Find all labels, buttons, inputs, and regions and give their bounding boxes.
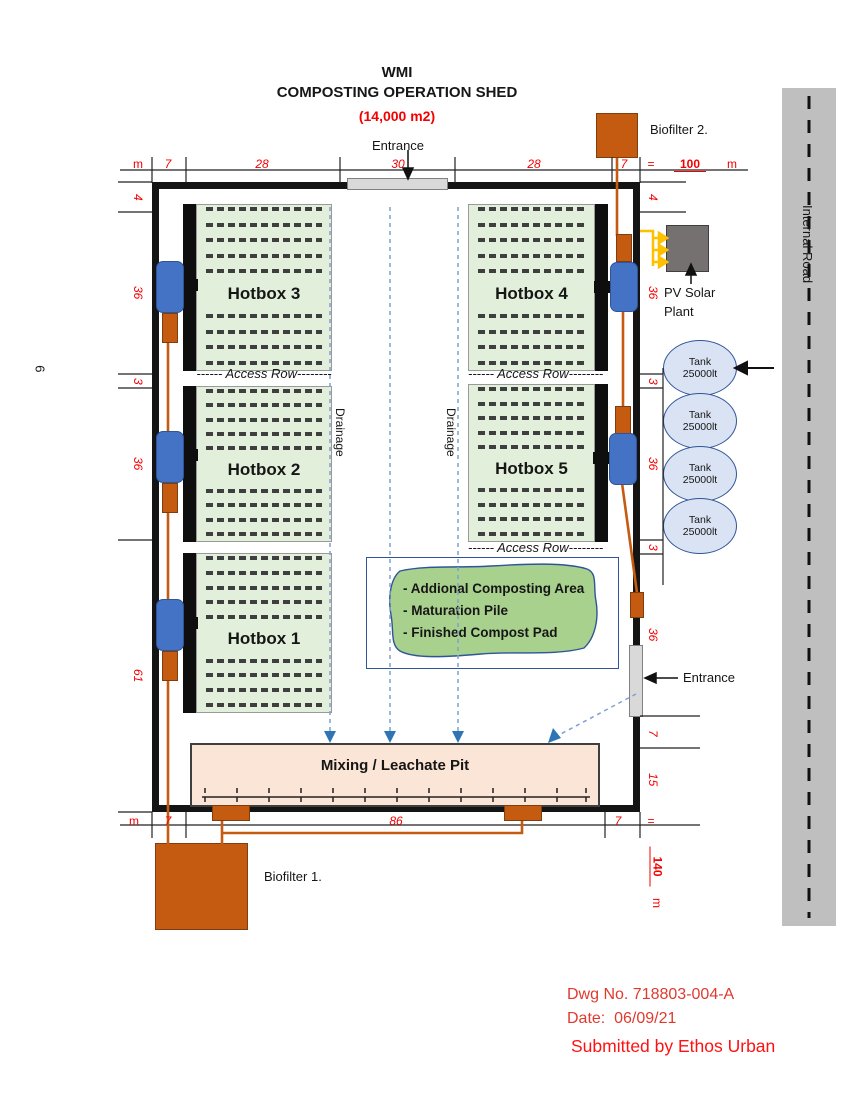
dim-top-total: 100 xyxy=(674,157,706,172)
entrance-top-label: Entrance xyxy=(372,138,424,153)
dim-bottom-7-left: 7 xyxy=(160,814,176,828)
fan-duct xyxy=(616,234,632,262)
fan-duct xyxy=(615,406,631,434)
dim-bottom-total: 140 xyxy=(650,847,665,887)
dim-right-36a: 36 xyxy=(646,278,660,308)
drainage-lines xyxy=(330,207,636,736)
pit-tick-strip xyxy=(202,788,590,806)
dim-right-3a: 3 xyxy=(646,370,660,392)
drainage-label: Drainage xyxy=(443,408,458,480)
drawing-title-line1: WMI xyxy=(147,64,647,81)
dim-right-4: 4 xyxy=(646,186,660,208)
air-pipes xyxy=(168,158,637,845)
drainage-arrowheads xyxy=(324,728,561,743)
dim-top-m-right: m xyxy=(724,157,740,171)
dim-bottom-equals: = xyxy=(644,814,658,828)
pit-connector xyxy=(212,805,250,821)
tank-inlet-arrow xyxy=(735,362,774,374)
submitted-by: Submitted by Ethos Urban xyxy=(571,1036,775,1057)
dim-left-3: 3 xyxy=(131,370,145,392)
internal-road-label: Internal Road xyxy=(800,205,815,325)
linework-layer xyxy=(0,0,844,1104)
dim-bottom-m: m xyxy=(126,814,142,828)
biofilter-2-label: Biofilter 2. xyxy=(650,122,708,137)
wall-pipe-connector xyxy=(630,592,644,618)
dim-bottom-m-rot: m xyxy=(650,895,664,911)
aeration-fan-hotbox5 xyxy=(609,433,637,485)
page-number: 9 xyxy=(33,353,48,373)
dim-top-28-left: 28 xyxy=(248,157,276,171)
drawing-title-area: (14,000 m2) xyxy=(147,108,647,124)
dwg-date: Date: 06/09/21 xyxy=(567,1010,676,1028)
dim-top-28-right: 28 xyxy=(520,157,548,171)
fan-duct xyxy=(162,483,178,513)
pv-arrow xyxy=(686,264,696,284)
solar-feed-arrows xyxy=(640,231,667,267)
dim-right-36c: 36 xyxy=(646,620,660,650)
dim-right-36b: 36 xyxy=(646,449,660,479)
aeration-fan-hotbox2 xyxy=(156,431,184,483)
dim-bottom-7-right: 7 xyxy=(610,814,626,828)
dim-bottom-86: 86 xyxy=(382,814,410,828)
entrance-right-label: Entrance xyxy=(683,670,735,685)
entrance-right-arrow xyxy=(645,673,678,683)
dim-top-7-left: 7 xyxy=(160,157,176,171)
dwg-number: Dwg No. 718803-004-A xyxy=(567,986,734,1004)
biofilter-1-label: Biofilter 1. xyxy=(264,869,322,884)
pit-connector xyxy=(504,805,542,821)
aeration-fan-hotbox3 xyxy=(156,261,184,313)
fan-duct xyxy=(162,313,178,343)
dim-top-m-left: m xyxy=(130,157,146,171)
dim-left-36b: 36 xyxy=(131,449,145,479)
dim-top-equals: = xyxy=(644,157,658,171)
dim-left-61: 61 xyxy=(131,661,145,691)
dim-left-4: 4 xyxy=(131,186,145,208)
dim-top-7-right: 7 xyxy=(616,157,632,171)
dim-right-3b: 3 xyxy=(646,536,660,558)
drawing-title-line2: COMPOSTING OPERATION SHED xyxy=(147,84,647,101)
dim-left-36a: 36 xyxy=(131,278,145,308)
aeration-fan-hotbox1 xyxy=(156,599,184,651)
pv-solar-plant-label: PV Solar Plant xyxy=(664,283,726,321)
aeration-fan-hotbox4 xyxy=(610,262,638,312)
dim-right-15: 15 xyxy=(646,766,660,794)
drainage-label: Drainage xyxy=(332,408,347,480)
dim-top-30: 30 xyxy=(384,157,412,171)
composting-shed-drawing: Hotbox 3 Hotbox 2 Hotbox 1 Hotbox 4 xyxy=(0,0,844,1104)
fan-duct xyxy=(162,651,178,681)
dim-right-7: 7 xyxy=(646,722,660,744)
